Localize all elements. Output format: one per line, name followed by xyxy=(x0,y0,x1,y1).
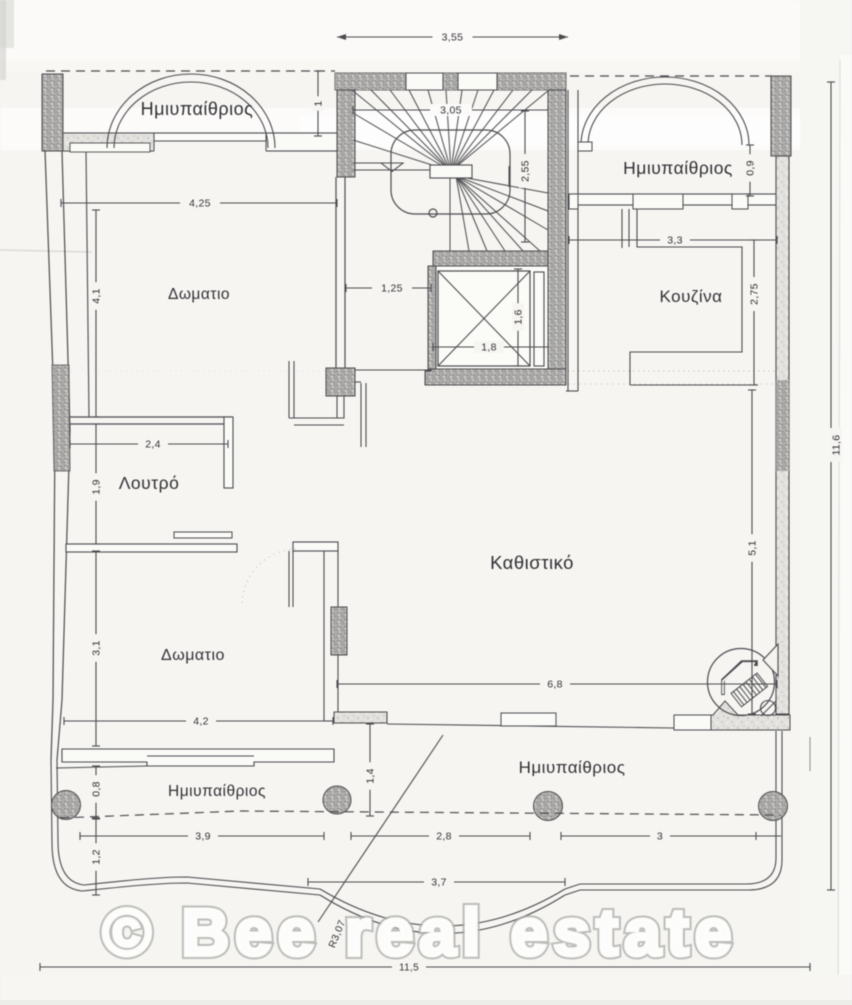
svg-text:Ημιυπαίθριος: Ημιυπαίθριος xyxy=(168,783,266,800)
svg-text:Δωματιο: Δωματιο xyxy=(168,286,230,303)
svg-text:3,3: 3,3 xyxy=(667,235,683,247)
svg-text:1,25: 1,25 xyxy=(381,283,403,295)
svg-text:2,4: 2,4 xyxy=(145,439,161,451)
svg-text:Ημιυπαίθριος: Ημιυπαίθριος xyxy=(141,99,254,119)
svg-text:1,8: 1,8 xyxy=(481,342,497,354)
svg-text:Δωματιο: Δωματιο xyxy=(161,647,225,664)
svg-text:1,4: 1,4 xyxy=(365,768,377,784)
svg-text:0,8: 0,8 xyxy=(91,781,103,797)
svg-text:3,1: 3,1 xyxy=(91,640,103,656)
svg-text:3,7: 3,7 xyxy=(431,877,447,889)
svg-text:6,8: 6,8 xyxy=(547,679,563,691)
svg-text:3,9: 3,9 xyxy=(195,831,211,843)
svg-text:Λουτρό: Λουτρό xyxy=(119,473,180,493)
svg-text:4,1: 4,1 xyxy=(91,288,103,304)
svg-text:Ημιυπαίθριος: Ημιυπαίθριος xyxy=(519,758,626,777)
svg-text:Ημιυπαίθριος: Ημιυπαίθριος xyxy=(623,158,733,178)
svg-text:2,75: 2,75 xyxy=(749,283,761,305)
svg-text:11,6: 11,6 xyxy=(831,435,843,456)
svg-text:© Bee real estate: © Bee real estate xyxy=(103,895,738,969)
svg-text:4,2: 4,2 xyxy=(193,716,209,728)
svg-text:0,9: 0,9 xyxy=(745,160,757,176)
svg-text:1,2: 1,2 xyxy=(91,849,103,865)
svg-text:1: 1 xyxy=(313,100,325,106)
svg-text:2,8: 2,8 xyxy=(436,831,452,843)
svg-text:Καθιστικό: Καθιστικό xyxy=(490,552,574,573)
svg-text:1,9: 1,9 xyxy=(91,479,103,495)
svg-text:1,6: 1,6 xyxy=(513,309,525,325)
svg-text:4,25: 4,25 xyxy=(189,198,211,210)
svg-text:3,55: 3,55 xyxy=(442,32,464,44)
svg-text:2,55: 2,55 xyxy=(520,160,532,182)
svg-text:5,1: 5,1 xyxy=(747,540,759,556)
svg-text:3: 3 xyxy=(657,831,663,843)
svg-text:Κουζίνα: Κουζίνα xyxy=(660,287,723,306)
svg-text:3,05: 3,05 xyxy=(440,105,462,117)
